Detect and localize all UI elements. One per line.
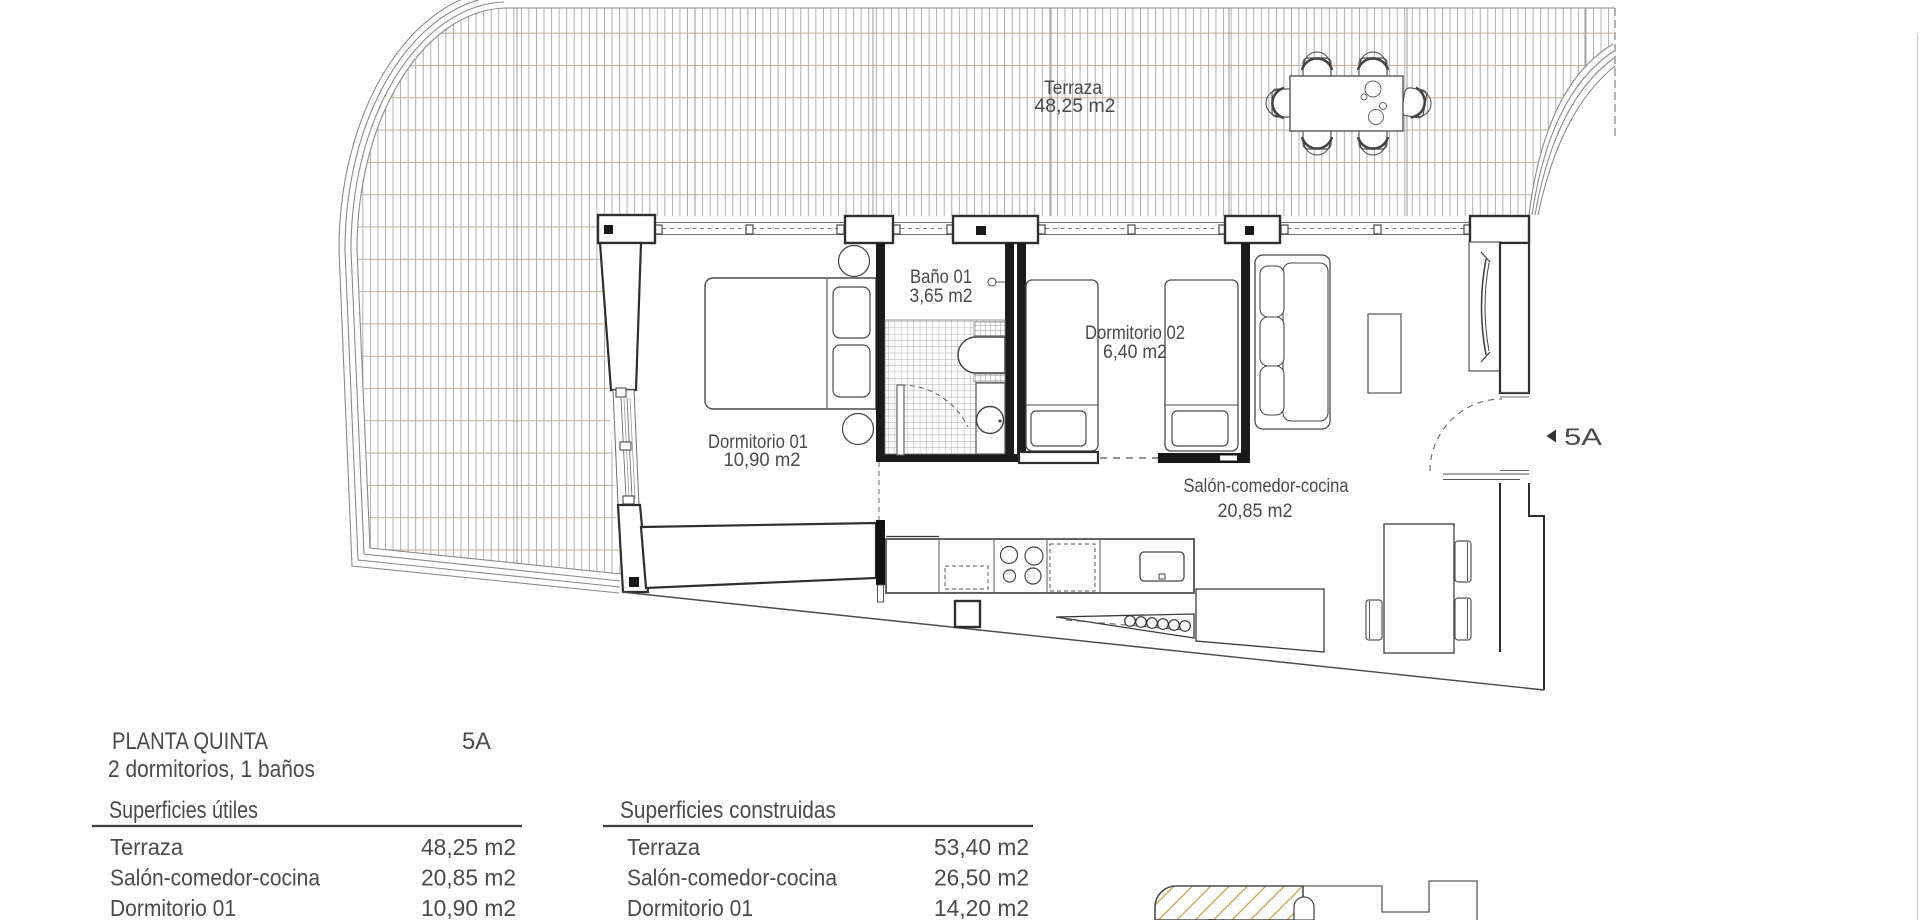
svg-text:PLANTA QUINTA: PLANTA QUINTA bbox=[112, 728, 268, 755]
svg-text:48,25 m2: 48,25 m2 bbox=[1035, 96, 1116, 117]
svg-text:20,85 m2: 20,85 m2 bbox=[421, 865, 516, 891]
svg-text:Terraza: Terraza bbox=[110, 834, 183, 860]
svg-text:Dormitorio 02: Dormitorio 02 bbox=[1085, 323, 1185, 344]
svg-text:Salón-comedor-cocina: Salón-comedor-cocina bbox=[1184, 476, 1349, 497]
svg-text:Baño 01: Baño 01 bbox=[910, 267, 972, 288]
svg-text:5A: 5A bbox=[1206, 913, 1230, 920]
svg-text:Superficies construidas: Superficies construidas bbox=[620, 797, 836, 824]
svg-text:6,40 m2: 6,40 m2 bbox=[1103, 342, 1167, 363]
svg-text:5A: 5A bbox=[462, 728, 491, 755]
svg-text:10,90 m2: 10,90 m2 bbox=[724, 450, 801, 471]
svg-text:20,85 m2: 20,85 m2 bbox=[1218, 501, 1293, 522]
svg-text:Terraza: Terraza bbox=[627, 834, 700, 860]
svg-text:48,25 m2: 48,25 m2 bbox=[421, 834, 516, 860]
svg-text:Dormitorio 01: Dormitorio 01 bbox=[627, 895, 753, 920]
svg-text:53,40 m2: 53,40 m2 bbox=[934, 834, 1029, 860]
svg-text:14,20 m2: 14,20 m2 bbox=[934, 895, 1029, 920]
svg-text:5A: 5A bbox=[1564, 424, 1602, 451]
svg-text:10,90 m2: 10,90 m2 bbox=[421, 895, 516, 920]
svg-text:26,50 m2: 26,50 m2 bbox=[934, 865, 1029, 891]
svg-text:3,65 m2: 3,65 m2 bbox=[910, 286, 973, 307]
svg-text:Dormitorio 01: Dormitorio 01 bbox=[110, 895, 236, 920]
svg-text:Salón-comedor-cocina: Salón-comedor-cocina bbox=[110, 865, 320, 891]
svg-text:Salón-comedor-cocina: Salón-comedor-cocina bbox=[627, 865, 837, 891]
svg-text:2 dormitorios, 1 baños: 2 dormitorios, 1 baños bbox=[108, 756, 315, 783]
svg-text:Superficies útiles: Superficies útiles bbox=[109, 797, 258, 824]
